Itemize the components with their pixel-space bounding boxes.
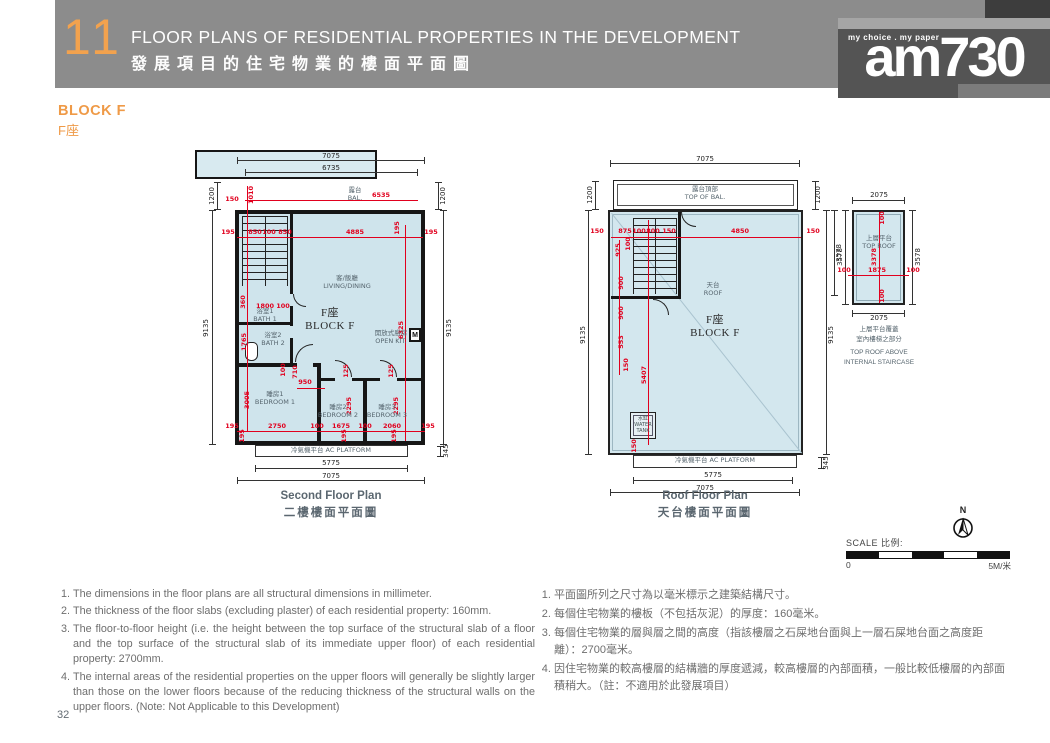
block-name-en: BLOCK F — [58, 103, 126, 119]
dim-text: 6735 — [322, 164, 340, 172]
dim-text: 1875 — [868, 267, 886, 275]
chapter-number: 11 — [63, 8, 123, 66]
dim-text: 露台 BAL. — [348, 187, 363, 203]
notes-english-list: The dimensions in the floor plans are al… — [73, 587, 535, 716]
scale-segment — [944, 552, 976, 558]
dim-line — [588, 210, 589, 455]
dim-text: 上層平台 TOP ROOF — [862, 235, 896, 251]
plan-caption-zh: 天台樓面平面圖 — [658, 504, 753, 520]
dim-text: 9135 — [445, 319, 453, 337]
dim-text: 195 — [421, 423, 435, 431]
dim-text: 7075 — [322, 152, 340, 160]
red-dim-line — [237, 237, 423, 238]
plan-caption-en: Roof Floor Plan — [662, 490, 748, 502]
dim-line — [852, 200, 905, 201]
red-dim-line — [648, 220, 649, 445]
dim-text: 100 — [837, 267, 851, 275]
dim-text: 125 — [388, 364, 396, 378]
dim-text: 3578 — [836, 248, 844, 266]
note-item: The internal areas of the residential pr… — [73, 670, 535, 716]
dim-text: 7075 — [696, 155, 714, 163]
dim-text: 345 — [442, 444, 450, 457]
dim-text: 9135 — [827, 326, 835, 344]
page-number: 32 — [57, 709, 69, 721]
dim-line — [255, 468, 408, 469]
dim-text: 100 — [262, 229, 276, 237]
dim-text: 925 — [615, 243, 623, 257]
scale-segment — [912, 552, 944, 558]
dim-text: 9135 — [202, 319, 210, 337]
dim-line — [633, 480, 793, 481]
dim-line — [217, 182, 218, 210]
dim-text: 天台 ROOF — [704, 282, 723, 298]
dim-text: 5775 — [322, 459, 340, 467]
balcony-outline — [195, 150, 377, 179]
dim-text: 100 — [358, 423, 372, 431]
dim-text: 5775 — [704, 471, 722, 479]
dim-text: 195 — [391, 429, 399, 443]
interior-wall — [678, 212, 681, 299]
scale-bar-group: SCALE 比例: 0 5M/米 — [846, 536, 1011, 572]
dim-text: 195 — [341, 429, 349, 443]
block-name-zh: F座 — [58, 120, 79, 139]
dim-text: 開放式廚房 OPEN KIT. — [375, 330, 408, 346]
dim-text: 100 — [879, 289, 887, 303]
staircase — [242, 216, 288, 286]
north-label: N — [945, 505, 981, 515]
page-title-zh: 發展項目的住宅物業的樓面平面圖 — [131, 50, 476, 74]
top-roof-caption-zh: 上層平台覆蓋 室內樓梯之部分 — [856, 325, 902, 345]
dim-text: 875 — [618, 228, 632, 236]
dim-text: 150 — [623, 358, 631, 372]
dim-text: 100 — [906, 267, 920, 275]
dim-text: 195 — [239, 429, 247, 443]
dim-text: 150 — [225, 196, 239, 204]
red-dim-line — [297, 388, 325, 389]
scale-segment — [977, 552, 1009, 558]
dim-text: 4885 — [346, 229, 364, 237]
dim-text: 浴室1 BATH 1 — [253, 308, 276, 324]
dim-line — [595, 181, 596, 210]
top-roof-plan: 207520753578357810018751001003378100上層平台… — [835, 185, 965, 395]
scale-segment — [847, 552, 879, 558]
note-item: The dimensions in the floor plans are al… — [73, 587, 535, 602]
second-floor-plan: M 70756735120012009135913557757075345150… — [195, 150, 460, 525]
dim-text: 100 — [879, 211, 887, 225]
dim-text: 950 — [298, 379, 312, 387]
scale-end: 5M/米 — [988, 560, 1011, 572]
dim-text: 195 — [221, 229, 235, 237]
dim-text: 6535 — [372, 192, 390, 200]
dim-line — [212, 210, 213, 445]
plan-caption-zh: 二樓樓面平面圖 — [284, 504, 379, 520]
dim-text: 水缸 WATER TANK — [634, 416, 651, 434]
dim-text: 9135 — [579, 326, 587, 344]
dim-text: 3578 — [914, 248, 922, 266]
dim-text: 800 — [646, 228, 660, 236]
dim-text: 7075 — [322, 472, 340, 480]
note-item: 因住宅物業的較高樓層的結構牆的厚度遞減，較高樓層的內部面積，一般比較低樓層的內部… — [554, 661, 1010, 695]
am730-logo: am730 — [842, 26, 1046, 88]
dim-text: 3005 — [244, 391, 252, 409]
dim-text: 850 — [248, 229, 262, 237]
dim-text: 900 — [618, 306, 626, 320]
dim-text: 150 — [662, 228, 676, 236]
appliance-symbol: M — [409, 328, 421, 342]
interior-wall — [290, 214, 293, 294]
dim-text: 345 — [822, 456, 830, 469]
brochure-page: 11 FLOOR PLANS OF RESIDENTIAL PROPERTIES… — [0, 0, 1050, 743]
dim-text: 360 — [240, 295, 248, 309]
plan-caption-en: Second Floor Plan — [281, 490, 382, 502]
scale-bar — [846, 551, 1010, 559]
dim-text: 150 — [631, 439, 639, 453]
dim-text: 浴室2 BATH 2 — [261, 332, 284, 348]
dim-text: 900 — [618, 276, 626, 290]
dim-text: 150 — [590, 228, 604, 236]
dim-text: 1765 — [241, 333, 249, 351]
dim-text: 5407 — [641, 366, 649, 384]
dim-text: F座 BLOCK F — [690, 314, 740, 340]
note-item: 每個住宅物業的層與層之間的高度（指該樓層之石屎地台面與上一層石屎地台面之高度距離… — [554, 625, 1010, 659]
page-title-en: FLOOR PLANS OF RESIDENTIAL PROPERTIES IN… — [131, 27, 740, 48]
interior-wall — [290, 338, 293, 366]
roof-floor-plan: 7075120012009135913535785775707534515087… — [575, 150, 845, 525]
dim-text: 850 — [278, 229, 292, 237]
top-roof-caption-en: TOP ROOF ABOVE INTERNAL STAIRCASE — [844, 348, 914, 368]
dim-text: 100 — [276, 303, 290, 311]
dim-text: 195 — [424, 229, 438, 237]
interior-wall — [321, 378, 335, 381]
note-item: The thickness of the floor slabs (exclud… — [73, 604, 535, 619]
dim-text: 100 — [280, 363, 288, 377]
dim-text: 睡房3 BEDROOM 3 — [367, 404, 407, 420]
dim-text: 客/飯廳 LIVING/DINING — [323, 275, 371, 291]
dim-text: 125 — [343, 364, 351, 378]
dim-text: 1200 — [814, 186, 822, 204]
dim-text: 553 — [618, 335, 626, 349]
scale-segment — [879, 552, 911, 558]
scale-start: 0 — [846, 560, 851, 572]
notes-chinese-list: 平面圖所列之尺寸為以毫米標示之建築結構尺寸。每個住宅物業的樓板（不包括灰泥）的厚… — [554, 587, 1010, 695]
dim-text: 150 — [806, 228, 820, 236]
note-item: 平面圖所列之尺寸為以毫米標示之建築結構尺寸。 — [554, 587, 1010, 604]
dim-text: 1200 — [439, 187, 447, 205]
dim-text: 100 — [625, 237, 633, 251]
dim-text: 195 — [225, 423, 239, 431]
notes-chinese: 平面圖所列之尺寸為以毫米標示之建築結構尺寸。每個住宅物業的樓板（不包括灰泥）的厚… — [538, 587, 1010, 697]
dim-text: 1010 — [248, 186, 256, 204]
dim-text: 1200 — [586, 186, 594, 204]
dim-text: F座 BLOCK F — [305, 307, 355, 333]
scale-label: SCALE 比例: — [846, 536, 1011, 549]
dim-text: 露台頂部 TOP OF BAL. — [685, 186, 726, 202]
dim-text: 睡房2 BEDROOM 2 — [318, 404, 358, 420]
dim-line — [845, 210, 846, 305]
dim-text: 1200 — [208, 187, 216, 205]
note-item: The floor-to-floor height (i.e. the heig… — [73, 622, 535, 668]
interior-wall — [611, 296, 681, 299]
red-dim-line — [611, 237, 801, 238]
dim-text: 2075 — [870, 314, 888, 322]
dim-text: 2075 — [870, 191, 888, 199]
dim-text: 710 — [292, 365, 300, 379]
dim-text: 睡房1 BEDROOM 1 — [255, 391, 295, 407]
dim-text: 4850 — [731, 228, 749, 236]
dim-text: 100 — [632, 228, 646, 236]
dim-text: 195 — [394, 221, 402, 235]
notes-english: The dimensions in the floor plans are al… — [57, 587, 535, 718]
dim-text: 2750 — [268, 423, 286, 431]
dim-text: 100 — [310, 423, 324, 431]
dim-text: 冷氣機平台 AC PLATFORM — [291, 447, 371, 455]
note-item: 每個住宅物業的樓板（不包括灰泥）的厚度：160毫米。 — [554, 606, 1010, 623]
interior-wall — [397, 378, 423, 381]
red-dim-line — [245, 200, 418, 201]
dim-text: 冷氣機平台 AC PLATFORM — [675, 457, 755, 465]
